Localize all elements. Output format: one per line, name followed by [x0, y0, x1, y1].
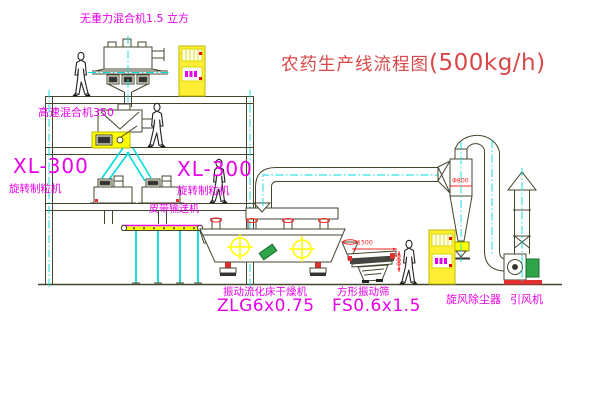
label-granulator-left-name: 旋转制粒机 [9, 184, 62, 195]
title-text: 农药生产线流程图 [281, 55, 429, 75]
label-dryer-model: ZLG6x0.75 [217, 298, 315, 315]
dim-cyclone-diameter: Φ800 [452, 178, 469, 184]
page-title: 农药生产线流程图(500kg/h) [281, 52, 546, 75]
label-fan: 引风机 [510, 294, 543, 305]
control-cabinet-2 [429, 230, 455, 284]
label-granulator-left-model: XL-300 [13, 156, 89, 176]
label-granulator-right-name: 旋转制粒机 [177, 186, 230, 197]
y-chute [102, 148, 151, 181]
title-capacity: (500kg/h) [429, 50, 546, 76]
label-weightless-mixer: 无重力混合机1.5 立方 [80, 13, 189, 24]
person-roof [74, 52, 90, 95]
duct-centerline [263, 175, 442, 206]
dim-screen-width: 600 [395, 254, 401, 266]
vibrating-screen [342, 240, 400, 283]
process-flow-diagram: 无重力混合机1.5 立方 农药生产线流程图(500kg/h) 高速混合机350 … [0, 0, 600, 403]
dim-screen-length: 1500 [357, 240, 373, 246]
label-high-speed-mixer: 高速混合机350 [38, 107, 114, 118]
belt-conveyor [121, 225, 214, 283]
label-cyclone: 旋风除尘器 [446, 294, 501, 305]
label-screen-model: FS0.6x1.5 [332, 298, 421, 315]
label-belt-conveyor: 皮带输送机 [149, 205, 199, 215]
granulator-left [90, 176, 136, 203]
person-ground [401, 240, 417, 283]
fluid-bed-dryer [200, 218, 345, 276]
control-cabinet-1 [179, 46, 205, 96]
induced-draft-fan [504, 254, 542, 285]
label-granulator-right-model: XL-300 [177, 159, 253, 179]
